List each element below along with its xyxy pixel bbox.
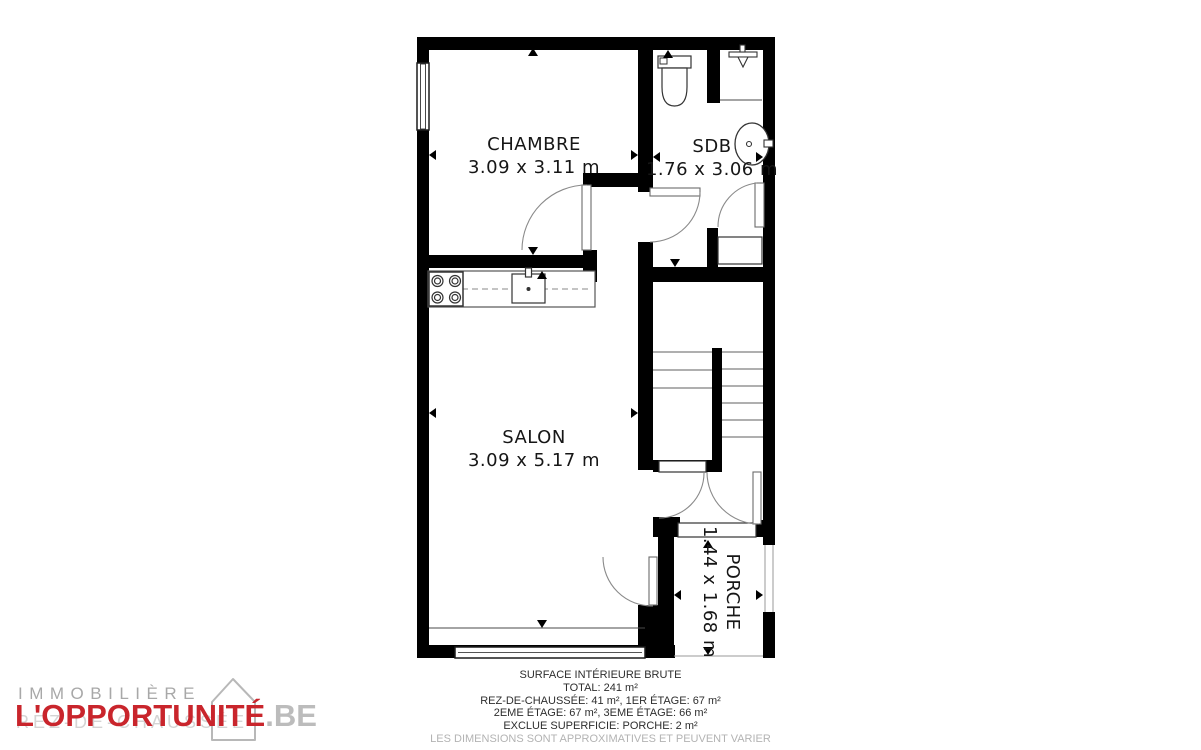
sdb-door-panel: [650, 188, 700, 196]
wall-right-lower: [763, 612, 775, 658]
salon-door-panel: [649, 557, 657, 605]
dim-arrow-left: [429, 408, 436, 418]
toilet-bowl: [662, 68, 687, 106]
wall-landing-left: [707, 228, 718, 267]
front-door-panel: [753, 472, 761, 524]
shower-head: [738, 57, 748, 67]
room-label-porche: PORCHE 1.44 x 1.68 m: [698, 517, 744, 667]
logo-tld-text: .BE: [265, 698, 317, 733]
dim-arrow-down: [537, 620, 547, 628]
wall-top: [417, 37, 775, 50]
sdb-landing-door-arc: [718, 183, 757, 227]
room-label-salon: SALON 3.09 x 5.17 m: [424, 426, 644, 472]
agency-logo: REZ-DE-CHAUSSÉE IMMOBILIÈRE L'OPPORTUNIT…: [0, 670, 320, 750]
room-name-chambre: CHAMBRE: [424, 133, 644, 156]
room-label-sdb: SDB 1.76 x 3.06 m: [622, 135, 802, 181]
room-name-porche: PORCHE: [721, 517, 744, 667]
room-dims-porche: 1.44 x 1.68 m: [698, 517, 721, 667]
floorplan-drawing: [0, 0, 1201, 750]
stair-bottom-step: [659, 461, 706, 472]
logo-brand-line: L'OPPORTUNITÉ.BE: [15, 698, 317, 734]
chambre-door-panel: [582, 185, 591, 250]
dim-arrow-right: [631, 408, 638, 418]
hall-door-arc: [659, 473, 704, 518]
wall-right-upper: [763, 37, 775, 545]
chambre-door-arc: [522, 185, 587, 250]
kitchen-faucet: [526, 268, 532, 277]
dim-arrow-down: [528, 247, 538, 255]
room-name-salon: SALON: [424, 426, 644, 449]
room-dims-sdb: 1.76 x 3.06 m: [622, 158, 802, 181]
wall-salon-right-lower: [638, 605, 658, 645]
salon-door-arc: [603, 557, 653, 606]
wall-hall-bottom: [653, 517, 680, 537]
wall-chambre-salon: [417, 255, 597, 268]
logo-brand-text: L'OPPORTUNITÉ: [15, 698, 265, 733]
chambre-window: [417, 63, 429, 130]
shower-bar: [729, 52, 757, 57]
kitchen-drain: [527, 287, 531, 291]
dim-arrow-down: [670, 259, 680, 267]
sdb-landing-door-panel: [755, 183, 764, 227]
room-label-chambre: CHAMBRE 3.09 x 3.11 m: [424, 133, 644, 179]
room-dims-chambre: 3.09 x 3.11 m: [424, 156, 644, 179]
wall-mid-horizontal: [638, 267, 775, 282]
floorplan-page: CHAMBRE 3.09 x 3.11 m SDB 1.76 x 3.06 m …: [0, 0, 1201, 750]
wall-stair-newel: [712, 348, 722, 470]
dim-arrow-left: [674, 590, 681, 600]
room-dims-salon: 3.09 x 5.17 m: [424, 449, 644, 472]
dim-arrow-right: [756, 590, 763, 600]
sdb-door-arc: [650, 192, 700, 242]
wall-porch-left: [658, 537, 674, 645]
kitchen: [428, 268, 595, 307]
stair-upper-landing: [718, 237, 762, 264]
shower-stem: [740, 45, 745, 52]
toilet-handle: [660, 58, 667, 64]
room-name-sdb: SDB: [622, 135, 802, 158]
wall-sdb-partition: [707, 50, 720, 103]
dim-arrow-up: [663, 50, 673, 58]
